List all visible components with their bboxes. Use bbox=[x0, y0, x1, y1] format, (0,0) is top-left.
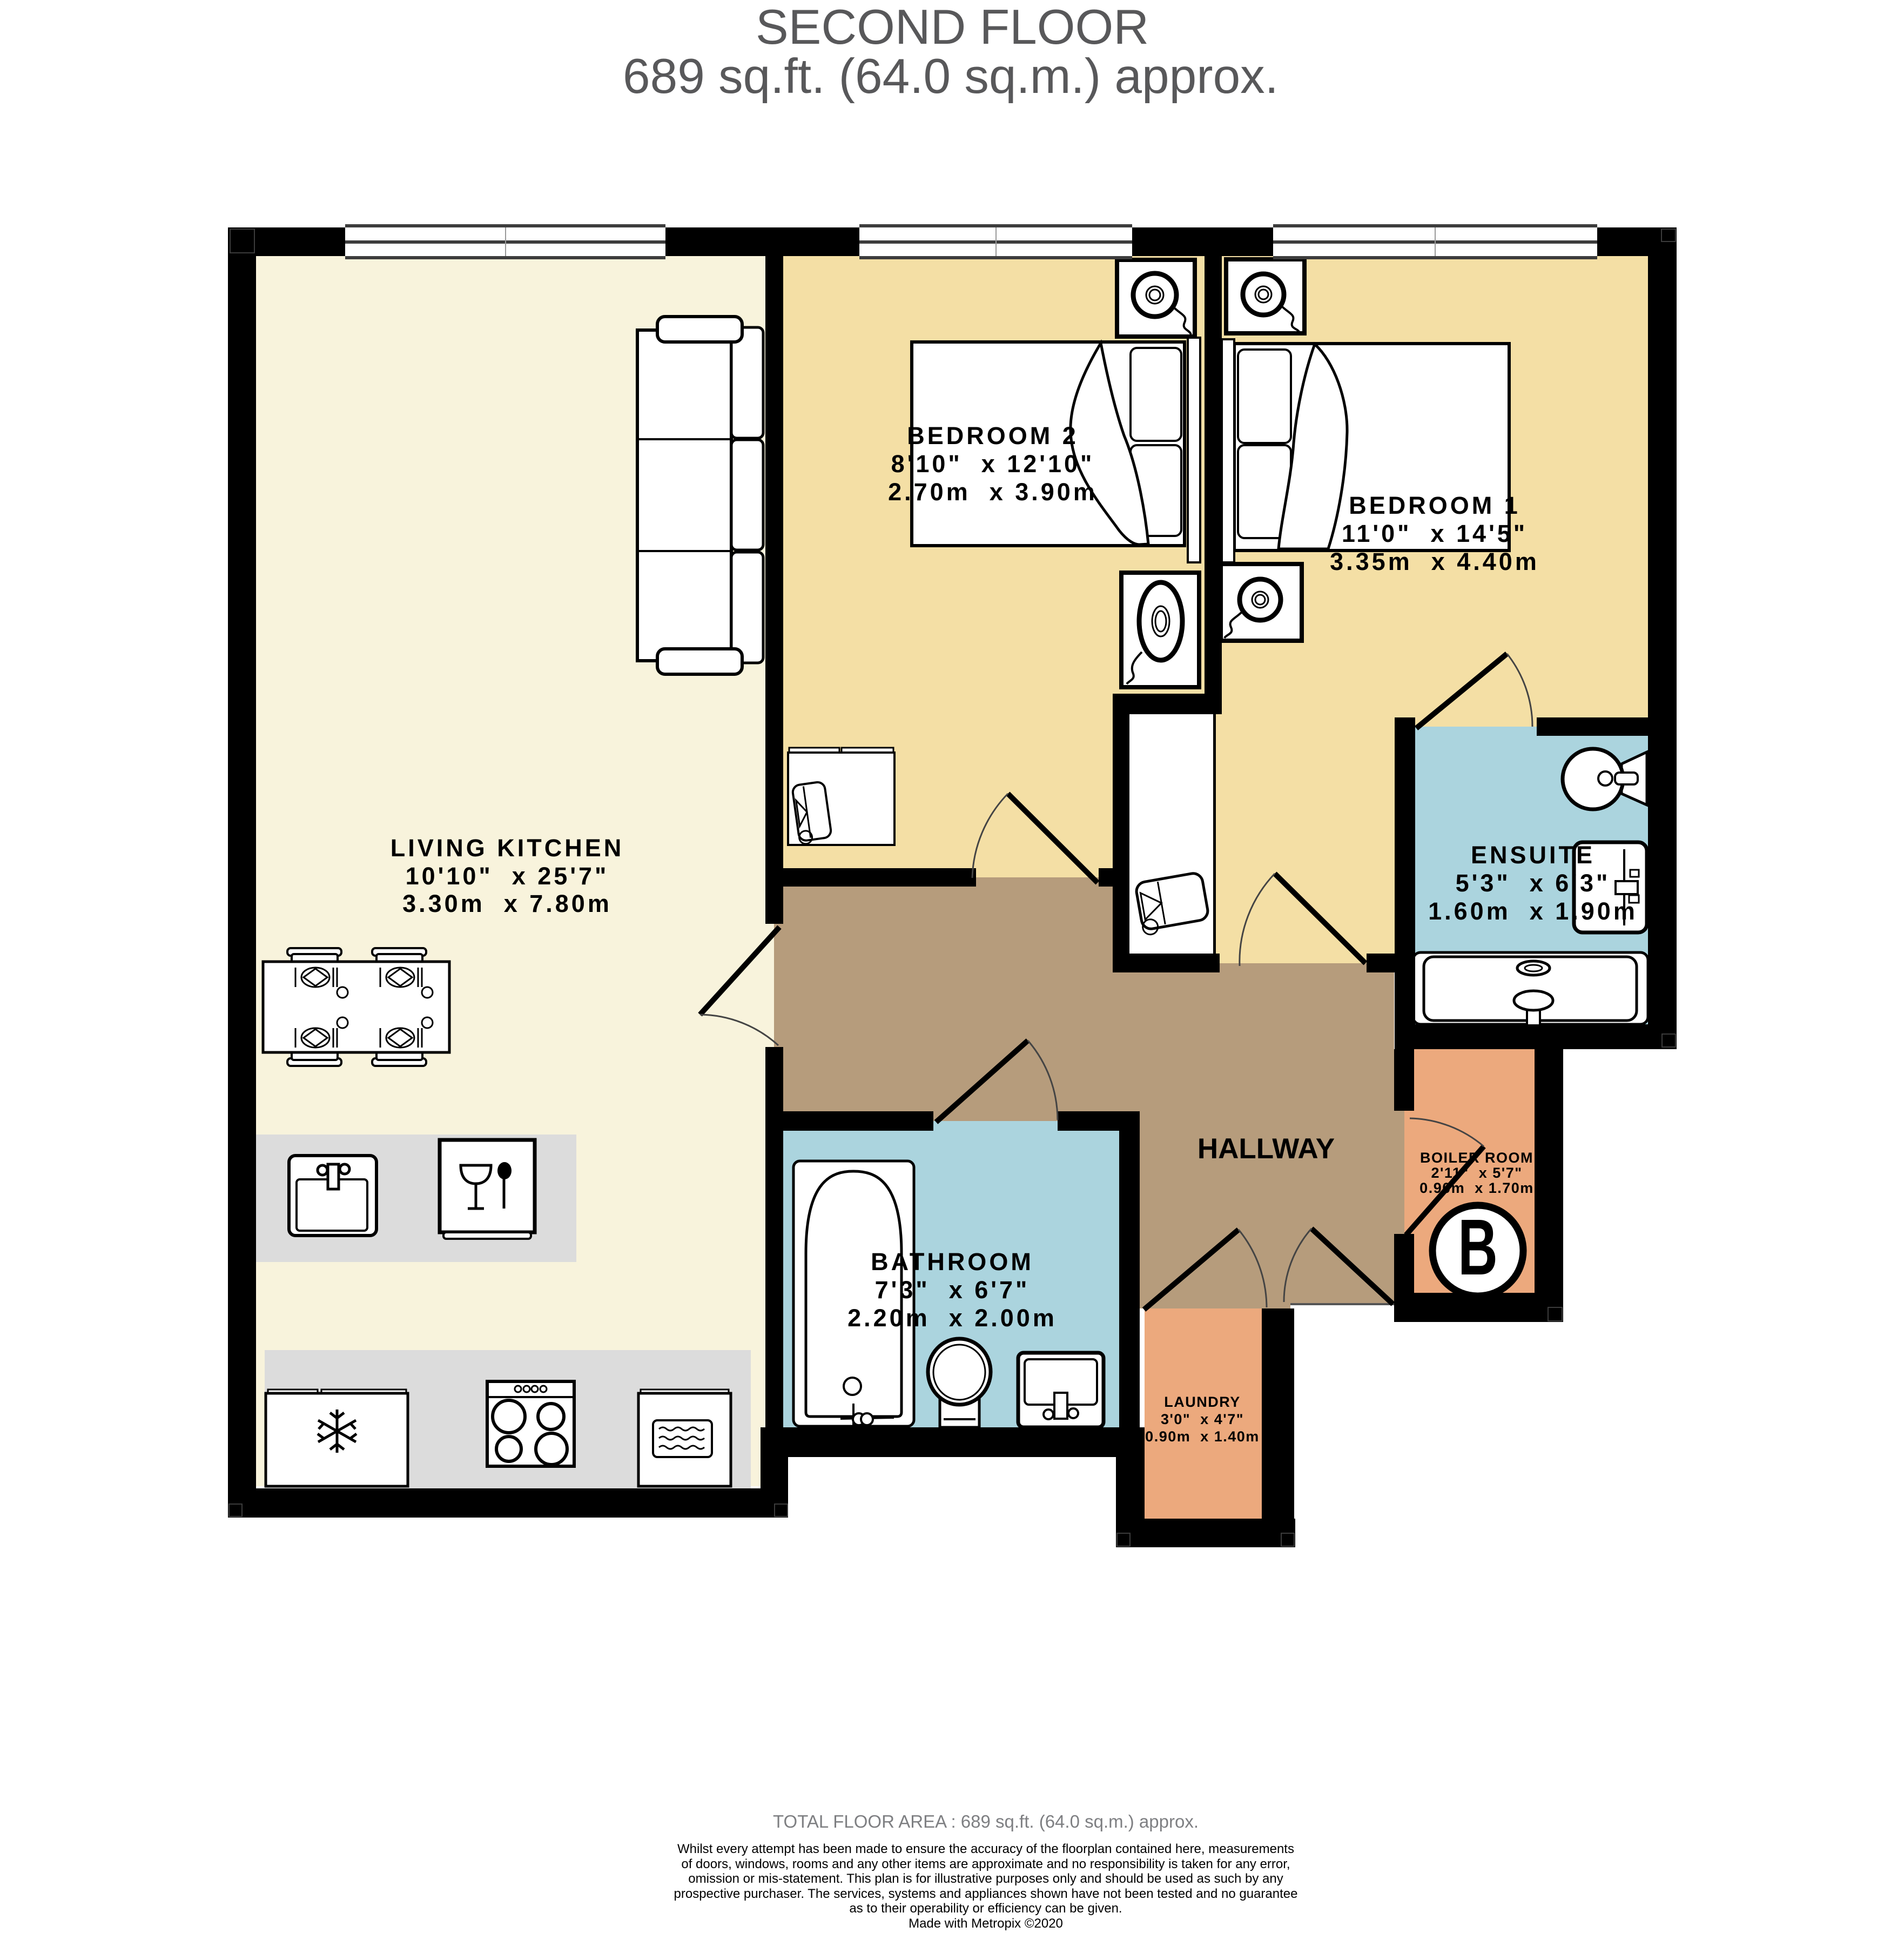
svg-text:TOTAL FLOOR AREA : 689 sq.ft.: TOTAL FLOOR AREA : 689 sq.ft. (64.0 sq.m… bbox=[773, 1811, 1199, 1831]
svg-text:10'10" x 25'7": 10'10" x 25'7" bbox=[406, 862, 609, 890]
svg-text:as to their operability or eff: as to their operability or efficiency ca… bbox=[849, 1901, 1122, 1916]
svg-text:BOILER ROOM: BOILER ROOM bbox=[1420, 1150, 1533, 1166]
svg-text:B: B bbox=[1458, 1203, 1498, 1292]
svg-text:3.30m x 7.80m: 3.30m x 7.80m bbox=[402, 890, 612, 917]
svg-text:2.20m x 2.00m: 2.20m x 2.00m bbox=[847, 1304, 1057, 1332]
svg-text:LAUNDRY: LAUNDRY bbox=[1164, 1394, 1241, 1410]
svg-text:of doors, windows, rooms and a: of doors, windows, rooms and any other i… bbox=[681, 1857, 1290, 1871]
svg-text:prospective purchaser. The ser: prospective purchaser. The services, sys… bbox=[674, 1887, 1298, 1901]
svg-text:5'3" x 6'3": 5'3" x 6'3" bbox=[1456, 869, 1611, 897]
svg-text:3.35m x 4.40m: 3.35m x 4.40m bbox=[1330, 548, 1539, 575]
svg-text:Whilst every attempt has been: Whilst every attempt has been made to en… bbox=[677, 1842, 1294, 1856]
svg-text:2'11" x 5'7": 2'11" x 5'7" bbox=[1431, 1165, 1522, 1181]
svg-text:ENSUITE: ENSUITE bbox=[1471, 841, 1595, 869]
svg-text:BEDROOM 2: BEDROOM 2 bbox=[907, 422, 1079, 449]
svg-text:3'0" x 4'7": 3'0" x 4'7" bbox=[1161, 1411, 1244, 1427]
svg-text:689 sq.ft. (64.0 sq.m.) approx: 689 sq.ft. (64.0 sq.m.) approx. bbox=[623, 49, 1279, 104]
svg-text:omission or mis-statement. Thi: omission or mis-statement. This plan is … bbox=[688, 1871, 1283, 1886]
svg-text:0.90m x 1.70m: 0.90m x 1.70m bbox=[1419, 1180, 1534, 1196]
svg-text:7'3" x 6'7": 7'3" x 6'7" bbox=[875, 1276, 1030, 1304]
svg-text:8'10" x 12'10": 8'10" x 12'10" bbox=[891, 450, 1095, 478]
svg-text:11'0" x 14'5": 11'0" x 14'5" bbox=[1342, 520, 1528, 547]
svg-text:BATHROOM: BATHROOM bbox=[871, 1248, 1034, 1276]
svg-text:LIVING KITCHEN: LIVING KITCHEN bbox=[391, 834, 624, 862]
svg-text:BEDROOM 1: BEDROOM 1 bbox=[1349, 492, 1520, 519]
svg-text:HALLWAY: HALLWAY bbox=[1197, 1133, 1335, 1165]
svg-text:2.70m x 3.90m: 2.70m x 3.90m bbox=[888, 478, 1098, 506]
svg-text:0.90m x 1.40m: 0.90m x 1.40m bbox=[1145, 1428, 1260, 1445]
svg-text:1.60m x 1.90m: 1.60m x 1.90m bbox=[1428, 897, 1638, 925]
svg-text:Made with Metropix ©2020: Made with Metropix ©2020 bbox=[909, 1916, 1063, 1931]
svg-text:SECOND FLOOR: SECOND FLOOR bbox=[756, 0, 1149, 55]
